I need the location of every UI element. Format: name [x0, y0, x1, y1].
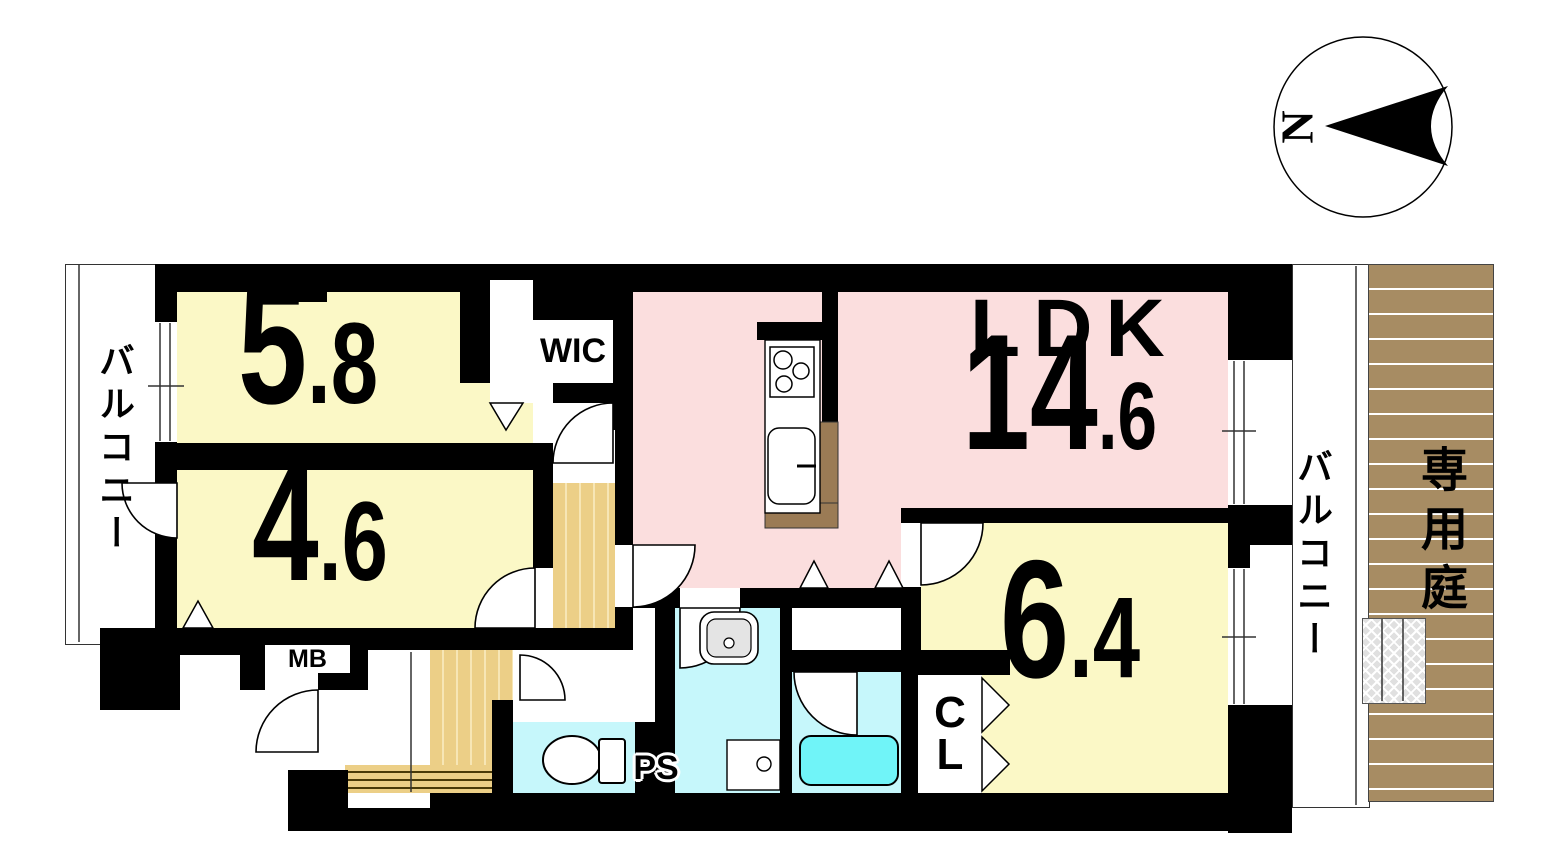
bedroom-5-8-size-label: 5 .8 [238, 249, 378, 442]
door-swing-marker [982, 737, 1009, 791]
size-decimal: .6 [1098, 362, 1157, 472]
size-decimal: .4 [1069, 572, 1140, 704]
mb-label: MB [265, 645, 350, 673]
toilet-icon [543, 736, 625, 784]
wic-label: WIC [533, 320, 613, 383]
door-swing-marker [183, 601, 213, 628]
cl-label-line2: L [937, 734, 964, 776]
door-arc-bathroom [794, 672, 857, 735]
washbasin-icon [700, 612, 758, 664]
door-swing-marker [875, 561, 903, 588]
door-swing-marker [800, 561, 828, 588]
door-arc-ldk [633, 545, 695, 607]
balcony-right-label: バルコニー [1286, 448, 1338, 663]
door-arc-toilet [520, 655, 565, 700]
balcony-left-label: バルコニー [88, 342, 140, 557]
size-decimal: .6 [319, 477, 388, 606]
bedroom-6-4-size-label: 6 .4 [1000, 523, 1140, 716]
floor-plan: N バルコニー バルコニー 専用庭 WIC LDK 14 .6 5 .8 4 .… [0, 0, 1556, 862]
size-number: 4 [252, 432, 319, 618]
cl-label-line1: C [934, 692, 966, 734]
compass-north-label: N [1272, 110, 1323, 143]
door-arc-bedroom-6-4 [921, 523, 983, 585]
stove-icon [770, 347, 814, 397]
plan-graphics: N [0, 0, 1556, 862]
cl-label: C L [918, 678, 982, 790]
kitchen-sink-icon [768, 428, 816, 504]
size-number: 5 [238, 249, 307, 442]
washing-machine-icon [727, 740, 780, 790]
ps-label: PS [633, 742, 679, 794]
door-arc-bedroom-5-8 [553, 403, 613, 463]
size-number: 14 [962, 298, 1098, 487]
door-swing-marker [490, 403, 523, 430]
size-decimal: .8 [307, 298, 378, 430]
door-arc-bedroom-4-6 [475, 568, 535, 628]
ldk-size-label: 14 .6 [962, 298, 1157, 487]
compass-icon: N [1272, 37, 1453, 217]
door-arc-entrance [256, 690, 318, 752]
bedroom-4-6-size-label: 4 .6 [252, 432, 388, 618]
bathtub-icon [800, 736, 898, 785]
garden-label: 専用庭 [1406, 445, 1475, 622]
size-number: 6 [1000, 523, 1069, 716]
